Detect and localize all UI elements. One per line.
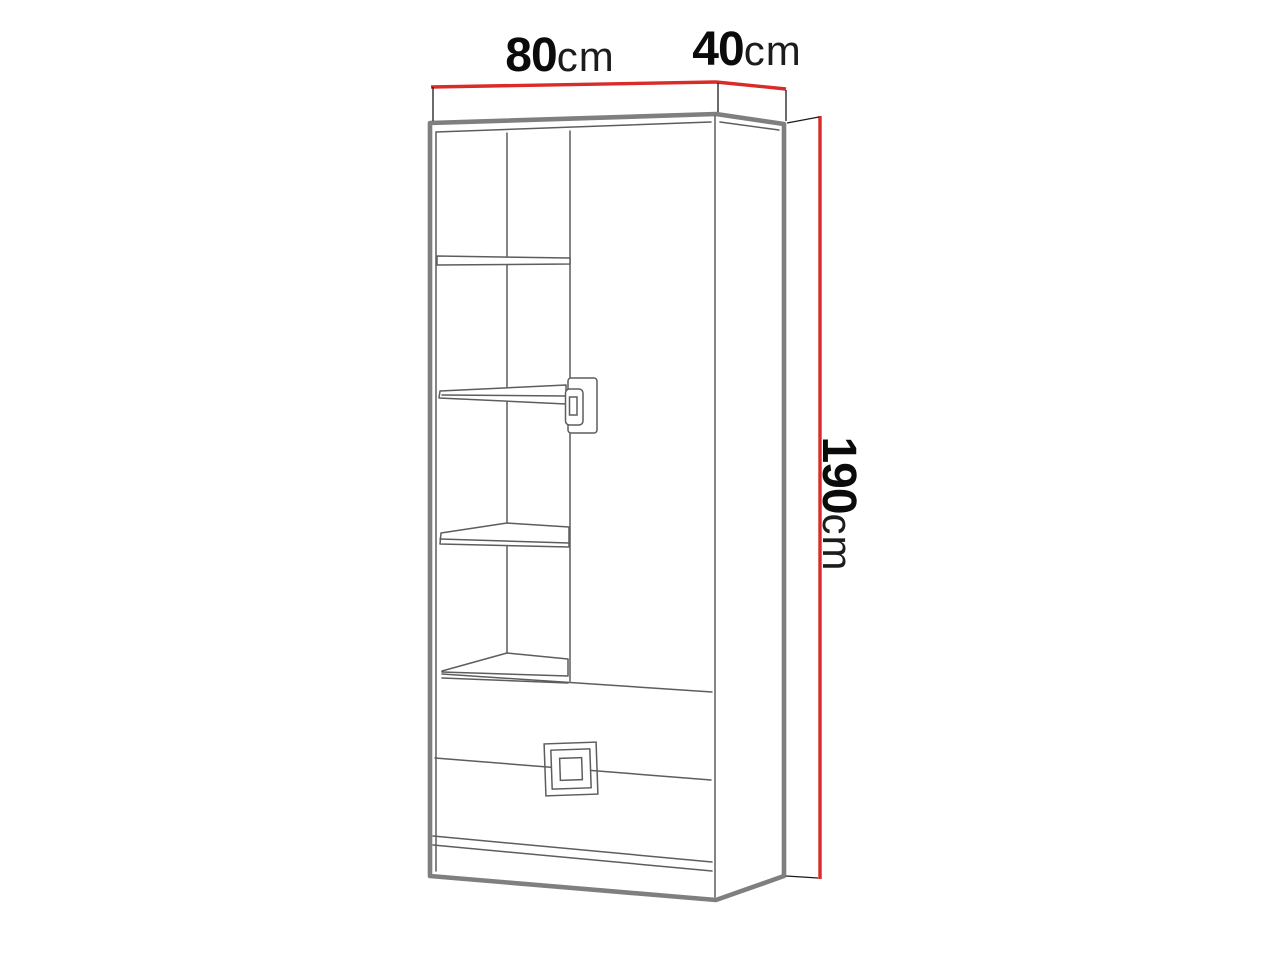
width-dimension-label: 80cm (455, 28, 665, 83)
cabinet-silhouette (430, 114, 784, 900)
door-handle (566, 378, 598, 433)
drawer-handle (544, 742, 598, 796)
width-unit: cm (557, 33, 615, 80)
furniture-dimension-diagram: 80cm 40cm 190cm (0, 0, 1276, 957)
tick-height-top (787, 117, 819, 123)
door-handle-tab (566, 389, 584, 425)
height-value: 190 (812, 436, 865, 513)
tick-height-bottom (786, 876, 818, 878)
depth-dimension-label: 40cm (642, 22, 852, 77)
height-unit: cm (814, 514, 861, 572)
depth-dimension-line (716, 82, 786, 89)
depth-unit: cm (744, 27, 802, 74)
shelf-2-edge-line (442, 395, 566, 396)
drawer-handle-middle-square (551, 749, 591, 789)
depth-value: 40 (692, 23, 743, 76)
shelf-1 (437, 256, 570, 265)
wardrobe-drawing (0, 0, 1276, 957)
cabinet-body (430, 114, 784, 900)
height-dimension-label: 190cm (814, 394, 866, 614)
width-value: 80 (505, 29, 556, 82)
